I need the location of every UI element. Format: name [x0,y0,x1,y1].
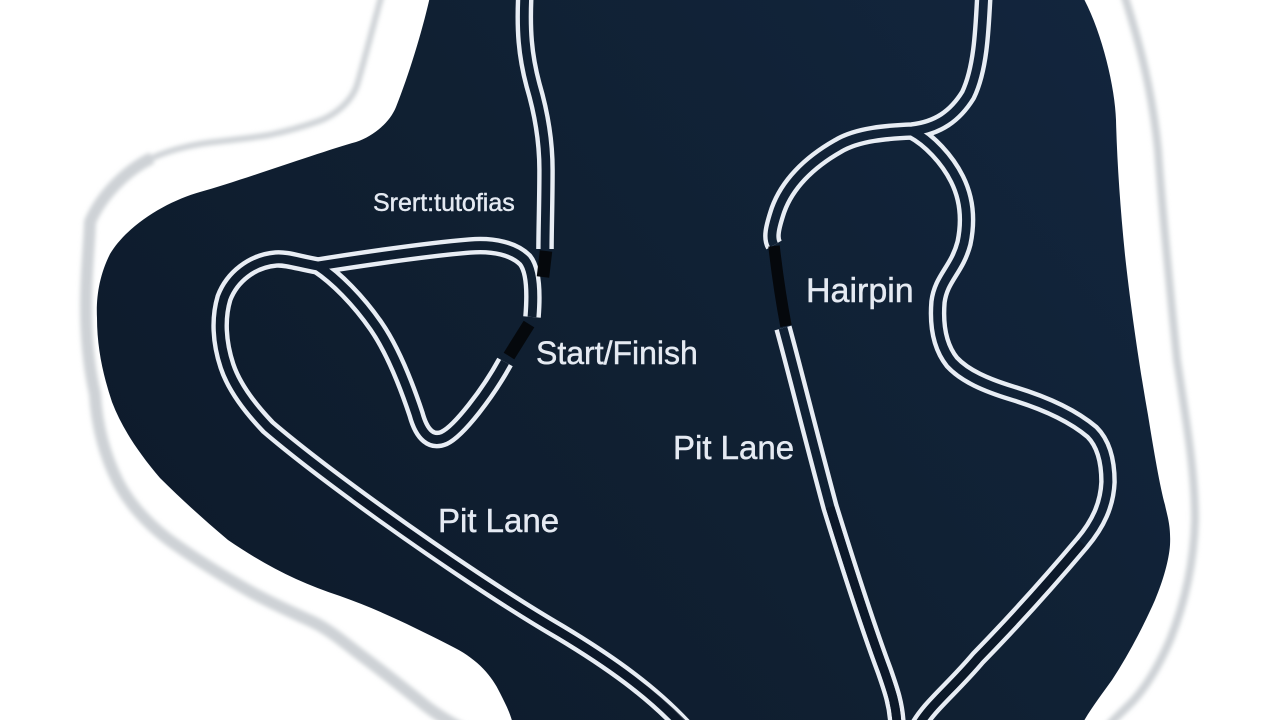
svg-text:Start/Finish: Start/Finish [536,335,698,371]
svg-text:Pit Lane: Pit Lane [438,502,559,539]
svg-text:Srert:tutofias: Srert:tutofias [373,189,515,217]
svg-text:Pit Lane: Pit Lane [673,429,794,466]
svg-text:Hairpin: Hairpin [806,272,914,310]
